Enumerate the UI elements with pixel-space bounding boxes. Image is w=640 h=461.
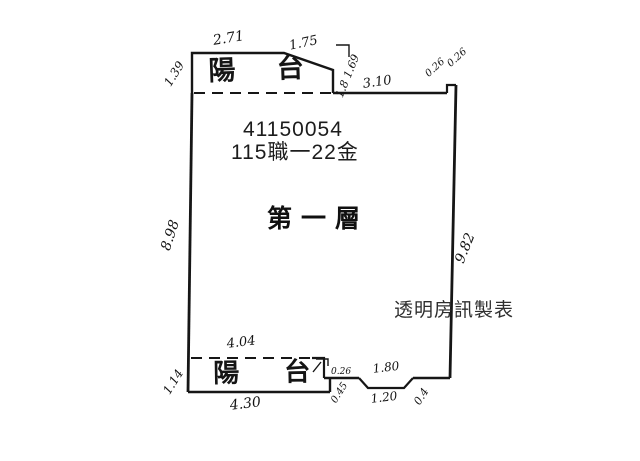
floor-plan-document: 41150054 115職一22金 透明房訊製表 第一層 陽 台 陽 台 1.3… xyxy=(0,0,640,461)
balcony-bottom-label: 陽 台 xyxy=(213,359,328,387)
dim-entry-bottom: 1.20 xyxy=(370,390,398,405)
dim-notch-offset: 0.26 xyxy=(331,368,351,377)
plan-lot-label: 115職一22金 xyxy=(231,142,359,163)
watermark-label: 透明房訊製表 xyxy=(394,301,514,320)
right-wall xyxy=(450,85,456,378)
slope-leader-bracket xyxy=(336,45,349,57)
dim-balcony-bottom-width: 4.30 xyxy=(229,395,262,413)
dim-entry-top: 1.80 xyxy=(372,360,400,375)
balcony-top-label: 陽 台 xyxy=(208,54,320,85)
plan-id-number: 41150054 xyxy=(243,119,343,140)
floor-label: 第一層 xyxy=(267,206,369,231)
entry-threshold xyxy=(359,378,413,388)
dim-top-wall: 3.10 xyxy=(362,74,392,91)
left-wall xyxy=(188,93,192,392)
dim-balcony-top-width: 4.04 xyxy=(226,334,256,350)
